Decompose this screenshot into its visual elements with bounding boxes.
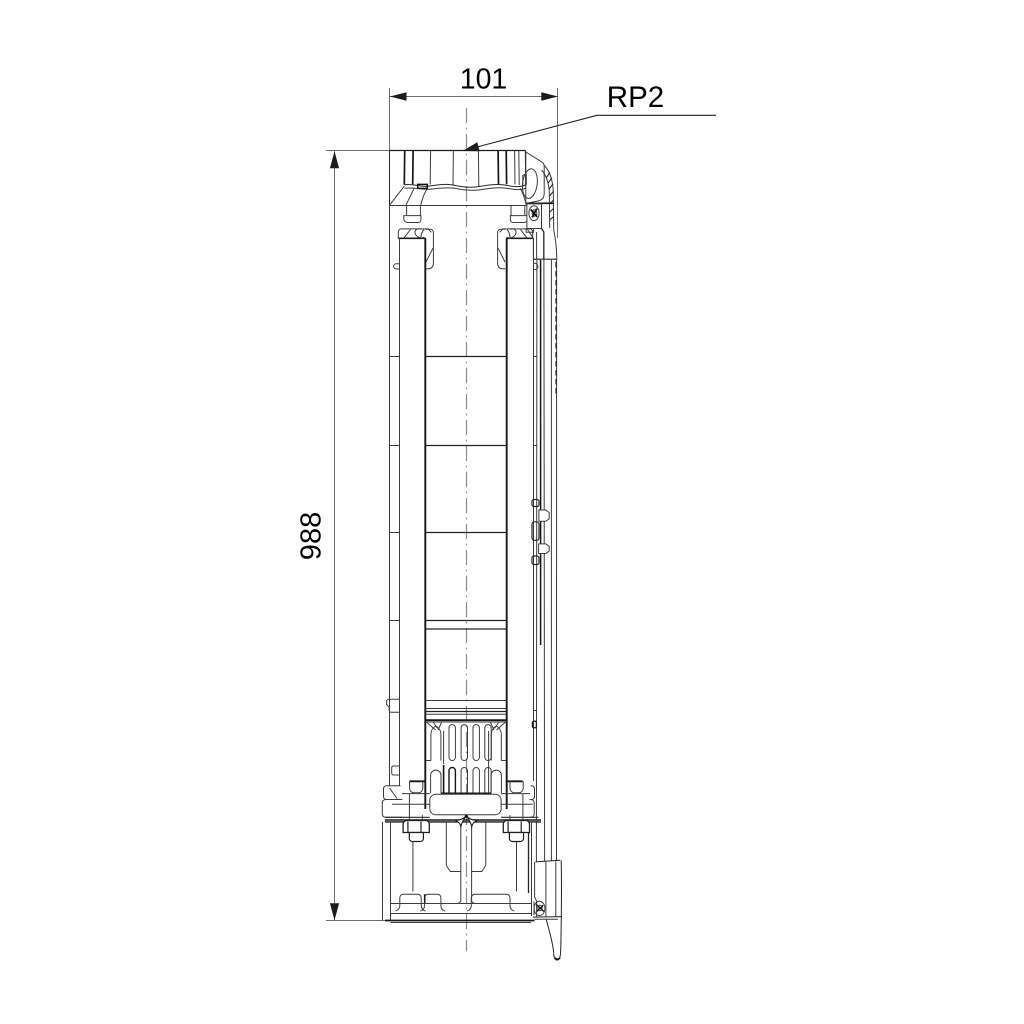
svg-text:101: 101	[460, 64, 508, 96]
svg-text:RP2: RP2	[607, 81, 664, 114]
svg-text:988: 988	[296, 512, 328, 560]
